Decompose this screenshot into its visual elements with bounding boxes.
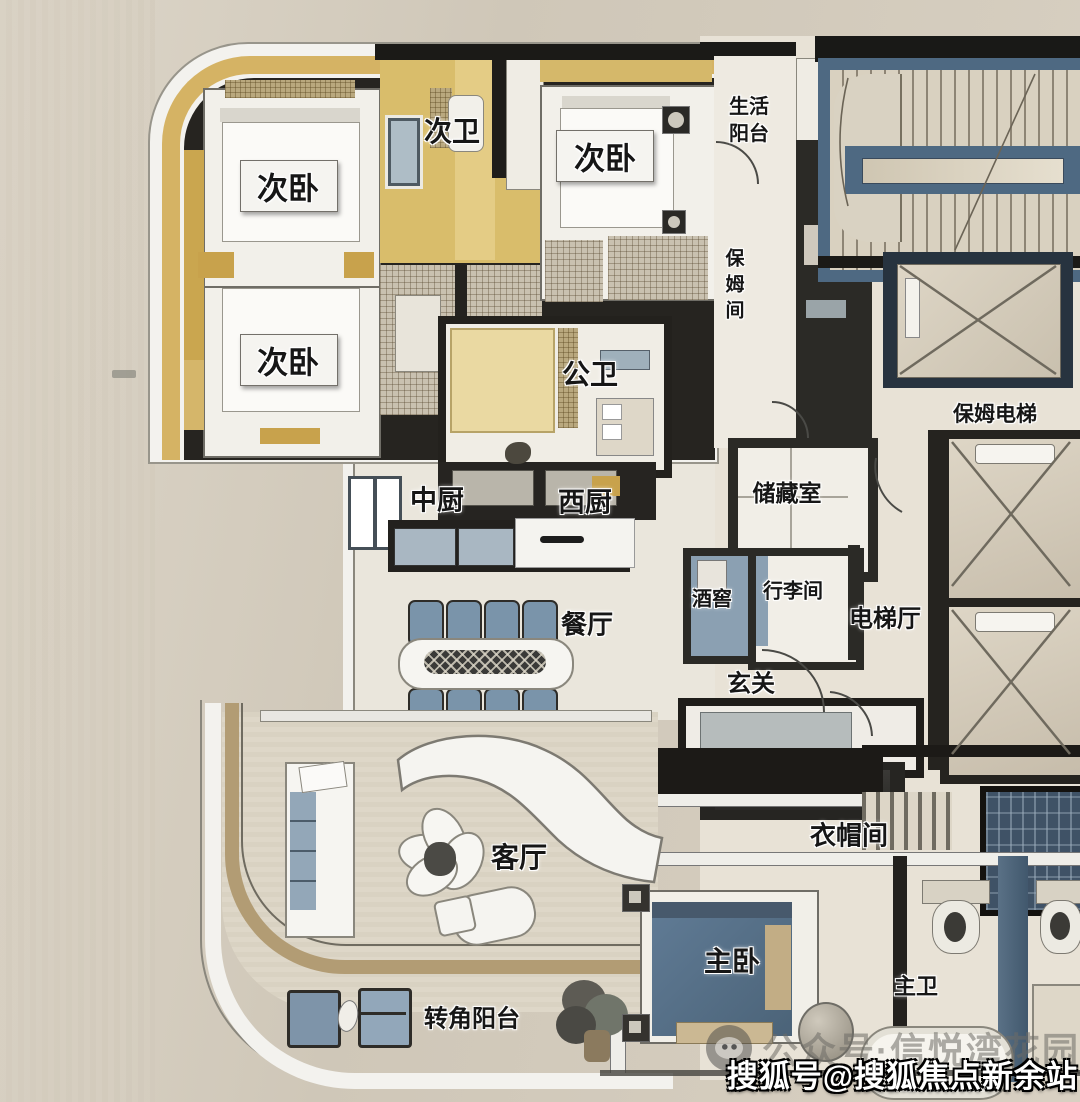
balcony-table-split [358, 1012, 406, 1015]
wall-background [0, 0, 155, 1102]
toilet-seat [1050, 912, 1070, 940]
potted-plant [556, 980, 630, 1064]
bedside-panel [765, 925, 791, 1010]
ottoman [433, 894, 478, 937]
staircase-landing-slot [862, 158, 1064, 184]
elevator-door-slot [975, 612, 1055, 632]
decor-stone [505, 442, 531, 464]
room-label-corner-balcony: 转角阳台 [424, 999, 520, 1034]
furniture-icon [662, 210, 686, 234]
wall-segment [862, 745, 1080, 757]
bed-headboard [562, 96, 670, 108]
wall-band [260, 710, 652, 722]
room-label-foyer: 玄关 [727, 664, 775, 699]
room-label-bedroom-mid-left: 次卧 [257, 338, 319, 383]
table-runner [424, 650, 546, 674]
secondary-bathroom-light-floor [455, 60, 495, 260]
room-label-nanny-room: 保姆间 [720, 248, 747, 326]
cabinet-panel [394, 528, 456, 566]
bed-headboard [220, 108, 360, 122]
room-label-elevator-hall: 电梯厅 [849, 599, 921, 634]
gold-accent-strip [540, 58, 712, 82]
room-label-chinese-kitchen: 中厨 [410, 479, 464, 518]
sink [602, 404, 622, 420]
closet [506, 58, 544, 190]
nightstand [622, 1014, 650, 1042]
furniture-icon [662, 106, 690, 134]
floorplan-canvas: 次卧 次卫 次卧 生活阳台 保姆间 次卧 公卫 保姆电梯 中厨 西厨 储藏室 酒… [0, 0, 1080, 1102]
room-label-luggage-room: 行李间 [763, 575, 823, 604]
window [395, 295, 441, 372]
tile-hatch [608, 236, 708, 300]
room-label-master-bathroom: 主卫 [894, 969, 938, 1001]
wall-segment [700, 42, 796, 56]
room-label-dining-room: 餐厅 [561, 605, 613, 642]
window [388, 118, 420, 186]
wall-segment [492, 58, 506, 178]
sohu-watermark-text: 搜狐号@搜狐焦点新余站 [727, 1051, 1078, 1096]
tile-hatch [225, 80, 355, 98]
wall-segment [375, 44, 715, 60]
room-label-wine-cellar: 酒窖 [692, 583, 732, 612]
wall-segment [928, 430, 940, 770]
room-label-public-bathroom: 公卫 [562, 353, 618, 393]
coffee-table-center [424, 842, 456, 876]
tile-hatch [545, 240, 603, 302]
room-label-living-room: 客厅 [491, 836, 547, 876]
service-fixture [806, 300, 846, 318]
gold-accent-strip [184, 360, 204, 430]
room-label-bathroom-secondary: 次卫 [424, 110, 480, 150]
cabinet-panel [458, 528, 514, 566]
room-label-bedroom-top-middle: 次卧 [574, 134, 636, 179]
sink [602, 424, 622, 440]
island-handle [540, 536, 584, 543]
elevator-door-slot [975, 444, 1055, 464]
room-label-bedroom-top-left: 次卧 [257, 164, 319, 209]
room-label-cloakroom: 衣帽间 [810, 816, 888, 853]
console-mirror [700, 712, 852, 750]
tv-cabinet-shelves [290, 792, 316, 910]
plant-pot [584, 1030, 610, 1062]
shower-area [450, 328, 555, 433]
room-label-western-kitchen: 西厨 [558, 481, 612, 520]
room-label-nanny-elevator: 保姆电梯 [953, 398, 1037, 428]
nightstand [622, 884, 650, 912]
elevator-door-slot [905, 278, 920, 338]
room-label-master-bedroom: 主卧 [704, 940, 760, 980]
cabinet-panel [452, 470, 534, 506]
gold-bench [344, 252, 374, 278]
balcony-table [358, 988, 412, 1048]
wall-tick-mark [112, 370, 136, 378]
room-label-life-balcony: 生活阳台 [725, 94, 773, 148]
toilet-seat [944, 912, 966, 942]
gold-bench [260, 428, 320, 444]
gold-bench [198, 252, 234, 278]
room-label-storage-room: 储藏室 [753, 474, 822, 508]
kitchen-island [515, 518, 635, 568]
nanny-elevator-cab [897, 264, 1061, 378]
balcony-table [287, 990, 341, 1048]
